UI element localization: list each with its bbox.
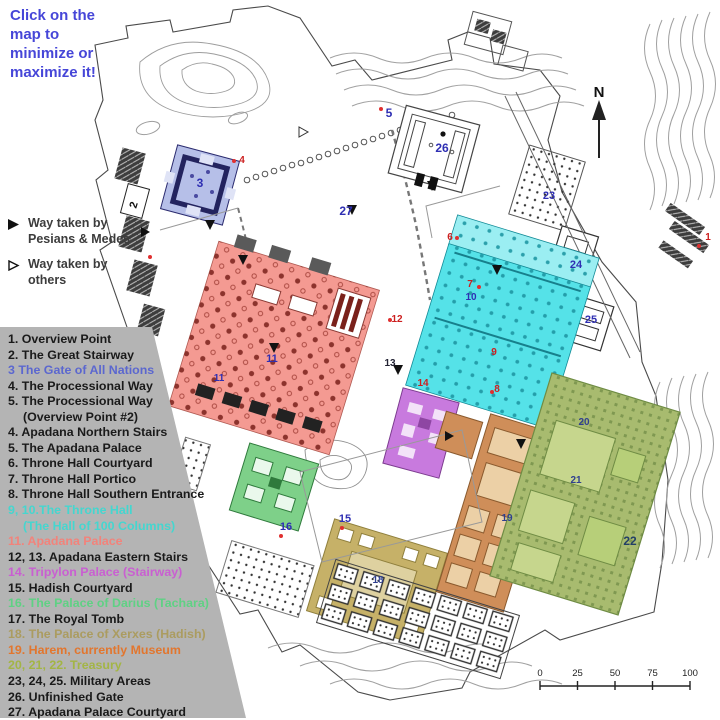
legend-item: 2. The Great Stairway — [8, 348, 209, 364]
scale-tick-label: 0 — [537, 668, 542, 679]
legend-item: 7. Throne Hall Portico — [8, 472, 209, 488]
legend-item: 3 The Gate of All Nations — [8, 363, 209, 379]
map-number-label: 15 — [339, 513, 351, 525]
map-number-label: 4 — [239, 155, 245, 166]
overview-point-stairs — [658, 203, 709, 269]
map-number-label: 5 — [386, 106, 393, 120]
map-number-label: 16 — [280, 521, 292, 533]
scale-bar: 0255075100 — [537, 668, 698, 690]
map-number-label: 7 — [467, 279, 473, 290]
legend-item: 16. The Palace of Darius (Tachara) — [8, 596, 209, 612]
map-number-label: 18 — [372, 575, 384, 586]
way-legend-persians: Way taken by Pesians & Medes — [8, 216, 130, 247]
open-arrow-icon — [8, 260, 20, 271]
map-number-label: 11 — [214, 373, 225, 384]
map-number-label: 1 — [705, 232, 711, 243]
legend-item: 26. Unfinished Gate — [8, 690, 209, 706]
scale-tick-label: 100 — [682, 668, 698, 679]
map-number-label: 20 — [578, 417, 590, 428]
map-number-label: 8 — [494, 384, 500, 395]
map-number-label: 25 — [585, 314, 597, 326]
map-number-label: 10 — [465, 292, 477, 303]
legend-item: 4. Apadana Northern Stairs — [8, 425, 209, 441]
way-legend-line: others — [28, 273, 66, 287]
legend-item: 18. The Palace of Xerxes (Hadish) — [8, 627, 209, 643]
filled-arrow-icon — [8, 219, 20, 230]
map-number-label: 12 — [391, 314, 403, 325]
way-legend-line: Way taken by — [28, 216, 107, 230]
north-arrow-icon — [592, 100, 606, 158]
legend-item: (The Hall of 100 Columns) — [8, 519, 209, 535]
legend-item: 6. Throne Hall Courtyard — [8, 456, 209, 472]
legend-list: 1. Overview Point2. The Great Stairway3 … — [8, 332, 209, 720]
way-legend-text: Way taken by Pesians & Medes — [28, 216, 130, 247]
way-legend-text: Way taken by others — [28, 257, 107, 288]
instruction-line: map to — [10, 25, 96, 44]
map-number-label: 9 — [491, 347, 497, 358]
legend-item: 19. Harem, currently Museum — [8, 643, 209, 659]
legend-item: 14. Tripylon Palace (Stairway) — [8, 565, 209, 581]
legend-item: 17. The Royal Tomb — [8, 612, 209, 628]
map-number-label: 24 — [570, 259, 583, 271]
legend-item: 4. The Processional Way — [8, 379, 209, 395]
way-legend-line: Pesians & Medes — [28, 232, 130, 246]
legend-item: 8. Throne Hall Southern Entrance — [8, 487, 209, 503]
map-number-label: 13 — [384, 358, 396, 369]
legend-item: 11. Apadana Palace — [8, 534, 209, 550]
map-number-label: 21 — [570, 475, 582, 486]
scale-tick-label: 25 — [572, 668, 583, 679]
map-instruction: Click on the map to minimize or maximize… — [10, 6, 96, 82]
legend-item: 1. Overview Point — [8, 332, 209, 348]
persepolis-map-page: 0255075100 N1234567109811111213141516181… — [0, 0, 720, 720]
legend-item: 20, 21, 22. Treasury — [8, 658, 209, 674]
map-number-label: 22 — [623, 534, 637, 548]
map-number-label: 14 — [417, 378, 429, 389]
map-number-label: 19 — [501, 513, 513, 524]
legend-item: 15. Hadish Courtyard — [8, 581, 209, 597]
instruction-line: Click on the — [10, 6, 96, 25]
way-legend-line: Way taken by — [28, 257, 107, 271]
way-legend: Way taken by Pesians & Medes Way taken b… — [8, 216, 130, 299]
way-legend-others: Way taken by others — [8, 257, 130, 288]
scale-tick-label: 75 — [647, 668, 658, 679]
map-number-label: 11 — [266, 353, 278, 365]
legend-item: 23, 24, 25. Military Areas — [8, 674, 209, 690]
legend-item: 5. The Apadana Palace — [8, 441, 209, 457]
legend-item: 5. The Processional Way — [8, 394, 209, 410]
map-number-label: 23 — [543, 190, 555, 202]
instruction-line: minimize or — [10, 44, 96, 63]
legend-item: (Overview Point #2) — [8, 410, 209, 426]
map-number-label: N — [594, 84, 605, 101]
map-number-label: 6 — [447, 232, 453, 243]
legend-item: 27. Apadana Palace Courtyard — [8, 705, 209, 720]
map-number-label: 27 — [339, 204, 353, 218]
legend-item: 12, 13. Apadana Eastern Stairs — [8, 550, 209, 566]
instruction-line: maximize it! — [10, 63, 96, 82]
map-number-label: 26 — [435, 141, 449, 155]
scale-tick-label: 50 — [610, 668, 621, 679]
legend-item: 9, 10.The Throne Hall — [8, 503, 209, 519]
map-number-label: 3 — [197, 176, 204, 190]
